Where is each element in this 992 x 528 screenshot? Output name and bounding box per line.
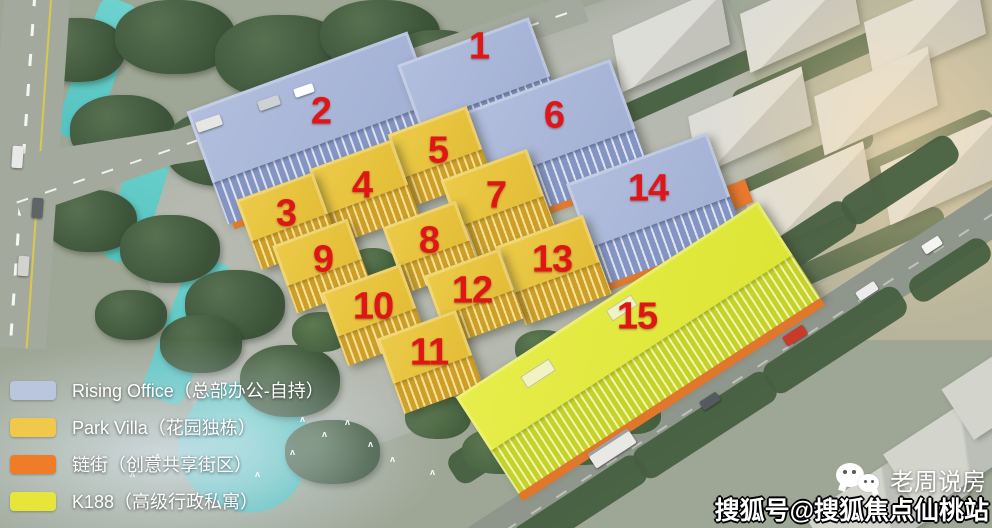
legend-item: 链街（创意共享街区） [10,454,324,474]
legend-swatch-chain-street [10,455,56,474]
building-12-number: 12 [452,270,492,313]
building-4-number: 4 [352,165,372,208]
car [17,256,29,277]
building-7-number: 7 [486,175,506,218]
tree-cluster [120,215,220,283]
legend-item: Rising Office（总部办公-自持） [10,380,324,400]
roof-vent [520,359,556,389]
building-10-number: 10 [353,286,393,329]
bird-icon: v [368,440,373,450]
sohu-watermark: 搜狐号@搜狐焦点仙桃站 [715,491,989,527]
building-5-number: 5 [428,130,448,173]
building-2-number: 2 [311,91,331,134]
legend-swatch-k188 [10,492,56,511]
building-1-number: 1 [469,26,489,69]
building-11-number: 11 [410,332,448,375]
building-15-number: 15 [617,296,657,339]
building-14-number: 14 [628,168,668,211]
building-13-number: 13 [532,239,572,282]
bird-icon: v [430,468,435,478]
legend-label: K188（高级行政私寓） [72,488,258,514]
bird-icon: v [390,455,395,465]
legend: Rising Office（总部办公-自持） Park Villa（花园独栋） … [10,380,324,528]
site-plan-rendering: v v v v v v v v v v 1 2 3 4 5 6 7 8 9 10… [0,0,992,528]
legend-item: K188（高级行政私寓） [10,491,324,511]
legend-label: Park Villa（花园独栋） [72,414,256,440]
legend-item: Park Villa（花园独栋） [10,417,324,437]
legend-label: 链街（创意共享街区） [72,451,252,477]
building-9-number: 9 [313,239,333,282]
car [11,146,24,169]
bird-icon: v [345,418,350,428]
legend-label: Rising Office（总部办公-自持） [72,377,324,403]
building-6-number: 6 [544,95,564,138]
car [31,198,43,219]
building-8-number: 8 [419,220,439,263]
legend-swatch-rising-office [10,381,56,400]
legend-swatch-park-villa [10,418,56,437]
building-3-number: 3 [276,193,296,236]
tree-cluster [95,290,167,340]
